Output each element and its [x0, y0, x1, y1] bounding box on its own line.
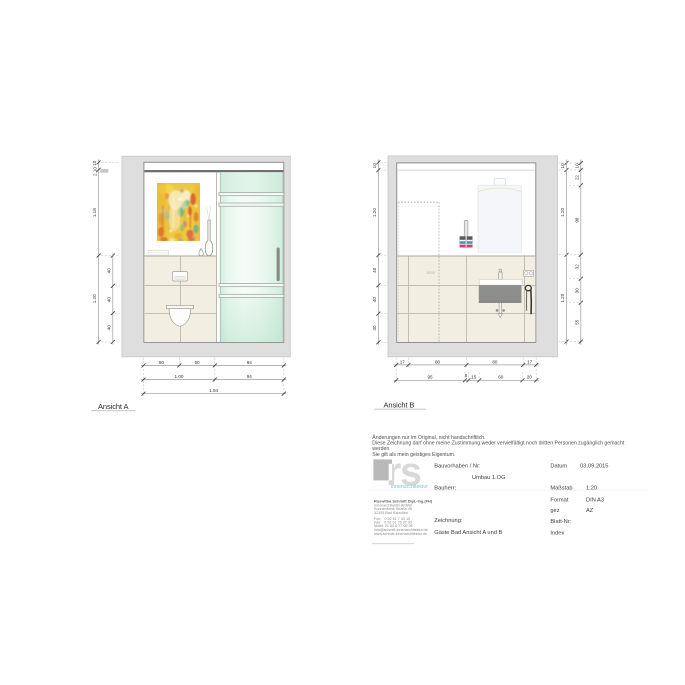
svg-text:1:20: 1:20	[586, 486, 597, 492]
svg-text:40: 40	[106, 325, 111, 331]
svg-text:17: 17	[400, 359, 406, 364]
svg-text:Datum: Datum	[550, 464, 567, 470]
svg-text:Index: Index	[550, 530, 564, 536]
svg-text:98: 98	[574, 217, 579, 223]
svg-text:Blatt-Nr:: Blatt-Nr:	[550, 519, 571, 525]
svg-text:40: 40	[372, 297, 377, 303]
svg-text:95: 95	[427, 375, 433, 380]
svg-text:10: 10	[92, 160, 97, 166]
svg-text:40: 40	[106, 268, 111, 274]
svg-text:Gäste Bad Ansicht A und B: Gäste Bad Ansicht A und B	[434, 530, 502, 536]
svg-text:1.18: 1.18	[92, 208, 97, 217]
svg-text:1.20: 1.20	[560, 293, 565, 302]
svg-text:50: 50	[194, 360, 200, 365]
svg-text:94: 94	[247, 360, 253, 365]
svg-text:22: 22	[574, 175, 579, 181]
svg-text:03.09.2015: 03.09.2015	[580, 464, 608, 470]
svg-text:1.94: 1.94	[209, 388, 218, 393]
svg-text:AZ: AZ	[586, 508, 594, 514]
svg-text:15: 15	[471, 375, 477, 380]
svg-text:Diese Zeichnung darf ohne mein: Diese Zeichnung darf ohne meine Zustimmu…	[372, 441, 625, 447]
svg-text:80: 80	[435, 359, 441, 364]
svg-text:Zeichnung:: Zeichnung:	[434, 518, 463, 524]
svg-text:30: 30	[574, 288, 579, 294]
svg-text:www.schmitt-innenarchitektur.d: www.schmitt-innenarchitektur.de	[374, 532, 427, 536]
svg-text:32: 32	[574, 264, 579, 270]
svg-text:1.20: 1.20	[372, 208, 377, 217]
svg-text:40: 40	[106, 297, 111, 303]
svg-text:5: 5	[465, 373, 468, 378]
svg-text:10: 10	[372, 163, 377, 169]
svg-text:20: 20	[527, 375, 533, 380]
svg-text:gez: gez	[550, 508, 559, 514]
svg-text:80: 80	[492, 359, 498, 364]
svg-text:1.20: 1.20	[560, 207, 565, 216]
svg-text:17: 17	[527, 359, 533, 364]
svg-text:Ansicht B: Ansicht B	[384, 400, 415, 409]
svg-text:Maßstab: Maßstab	[550, 486, 572, 492]
svg-text:1.20: 1.20	[92, 294, 97, 303]
svg-text:32105 Bad Salzuflen: 32105 Bad Salzuflen	[374, 511, 408, 515]
svg-text:Ansicht A: Ansicht A	[98, 402, 128, 411]
svg-text:Bauvorhaben / Nr:: Bauvorhaben / Nr:	[434, 464, 481, 470]
svg-text:55: 55	[574, 319, 579, 325]
svg-text:innenarchitektur: innenarchitektur	[391, 484, 428, 490]
svg-text:Umbau 1.OG: Umbau 1.OG	[472, 475, 506, 481]
svg-text:50: 50	[159, 360, 165, 365]
svg-text:40: 40	[372, 325, 377, 331]
svg-text:Format: Format	[550, 497, 568, 503]
svg-text:94: 94	[247, 374, 253, 379]
svg-text:Mobil: 01 60 6 77 09 98: Mobil: 01 60 6 77 09 98	[374, 524, 413, 528]
svg-text:10: 10	[574, 163, 579, 169]
svg-text:Bauherr:: Bauherr:	[434, 486, 456, 492]
svg-text:DIN A3: DIN A3	[586, 497, 604, 503]
svg-text:40: 40	[372, 267, 377, 273]
svg-text:1.00: 1.00	[175, 374, 184, 379]
svg-text:3000: 3000	[426, 270, 436, 275]
svg-text:2.10: 2.10	[93, 167, 98, 176]
svg-text:10: 10	[560, 163, 565, 169]
svg-text:60: 60	[498, 375, 504, 380]
